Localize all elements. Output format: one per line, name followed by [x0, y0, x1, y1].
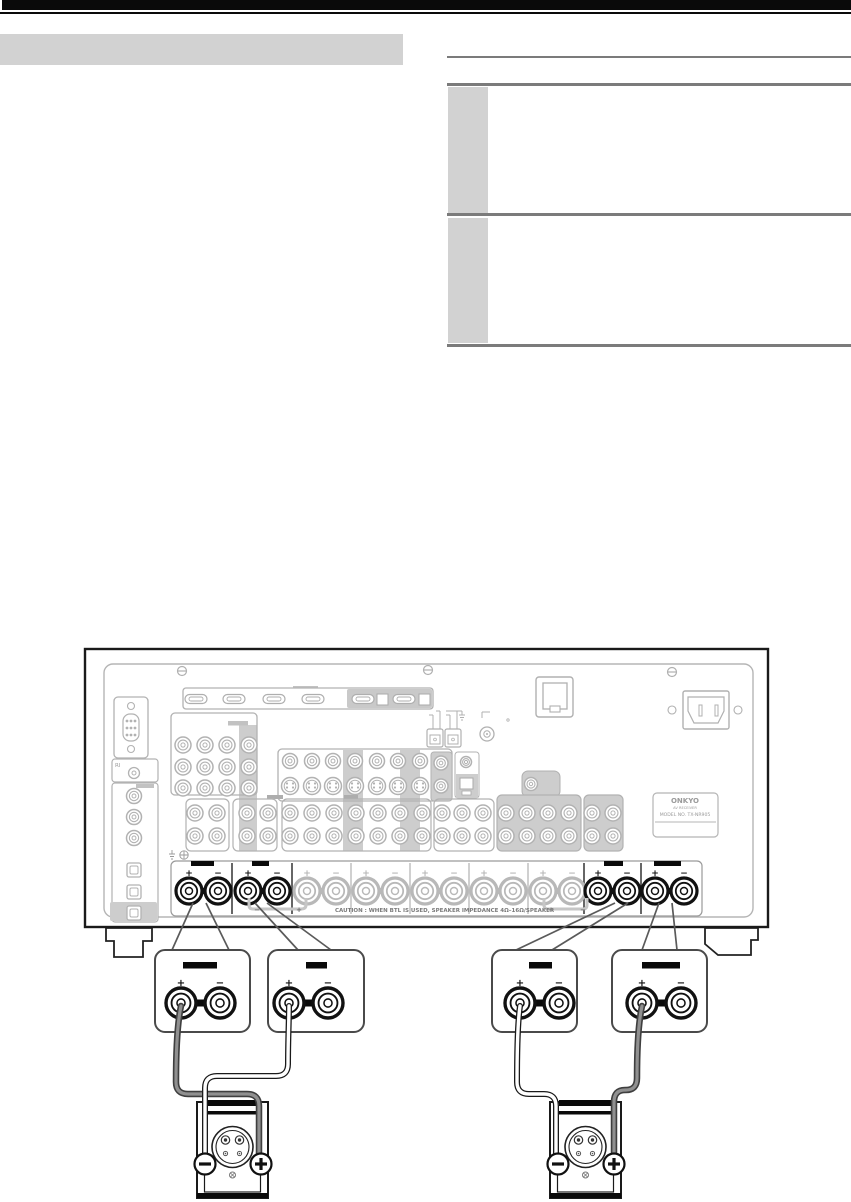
terminal-callout-box-3: +− [492, 950, 577, 1032]
binding-post [559, 878, 585, 904]
brand-label: ONKYO AV RECEIVER MODEL NO. TX-NR905 [653, 793, 718, 837]
svg-text:−: − [580, 906, 586, 914]
minus-badge [195, 1154, 216, 1175]
terminal-callout-box-4: +− [612, 950, 707, 1032]
page-top-rule [0, 12, 851, 14]
ri-jack: RI [112, 759, 158, 782]
section-heading-placeholder [0, 34, 403, 65]
table-rule-mid [447, 213, 851, 216]
terminal-callout-boxes: +−+−+−+− [155, 950, 707, 1032]
speaker-2-rear [550, 1100, 621, 1198]
binding-post [642, 878, 668, 904]
manual-page: RI [0, 0, 851, 1202]
binding-post [205, 988, 235, 1018]
minus-badge [548, 1154, 569, 1175]
plus-badge [251, 1154, 272, 1175]
table-rule-bottom [447, 344, 851, 347]
rs232-port [114, 697, 148, 758]
table-row2-label-cell [448, 218, 488, 343]
caution-text: CAUTION : WHEN BTL IS USED, SPEAKER IMPE… [335, 908, 555, 914]
left-jack-column [110, 783, 158, 922]
ethernet-port [536, 677, 573, 717]
binding-post [614, 878, 640, 904]
plus-badge [604, 1154, 625, 1175]
binding-post [500, 878, 526, 904]
brand-name: ONKYO [671, 797, 699, 805]
binding-post [471, 878, 497, 904]
speaker-polarity-badges [195, 1154, 625, 1175]
brand-subtitle: AV RECEIVER [673, 806, 697, 810]
terminal-callout-box-2: +− [268, 950, 364, 1032]
binding-post [176, 878, 202, 904]
binding-post [544, 988, 574, 1018]
binding-post [441, 878, 467, 904]
binding-post [671, 878, 697, 904]
binding-post [264, 878, 290, 904]
binding-post [205, 878, 231, 904]
brand-model: MODEL NO. TX-NR905 [660, 812, 711, 818]
binding-post [585, 878, 611, 904]
table-row1-label-cell [448, 87, 488, 213]
binding-post [666, 988, 696, 1018]
svg-text:+: + [296, 906, 302, 914]
terminal-callout-box-1: +− [155, 950, 250, 1032]
optical-jacks [127, 863, 141, 920]
binding-post [412, 878, 438, 904]
binding-post [323, 878, 349, 904]
page-top-bar [2, 0, 851, 10]
table-rule-header [447, 83, 851, 86]
table-rule-top [447, 56, 851, 58]
binding-post [313, 988, 343, 1018]
binding-post [382, 878, 408, 904]
btl-connection-diagram: RI [0, 635, 851, 1202]
binding-post [353, 878, 379, 904]
hdmi-block [183, 686, 433, 709]
svg-text:RI: RI [115, 763, 121, 769]
